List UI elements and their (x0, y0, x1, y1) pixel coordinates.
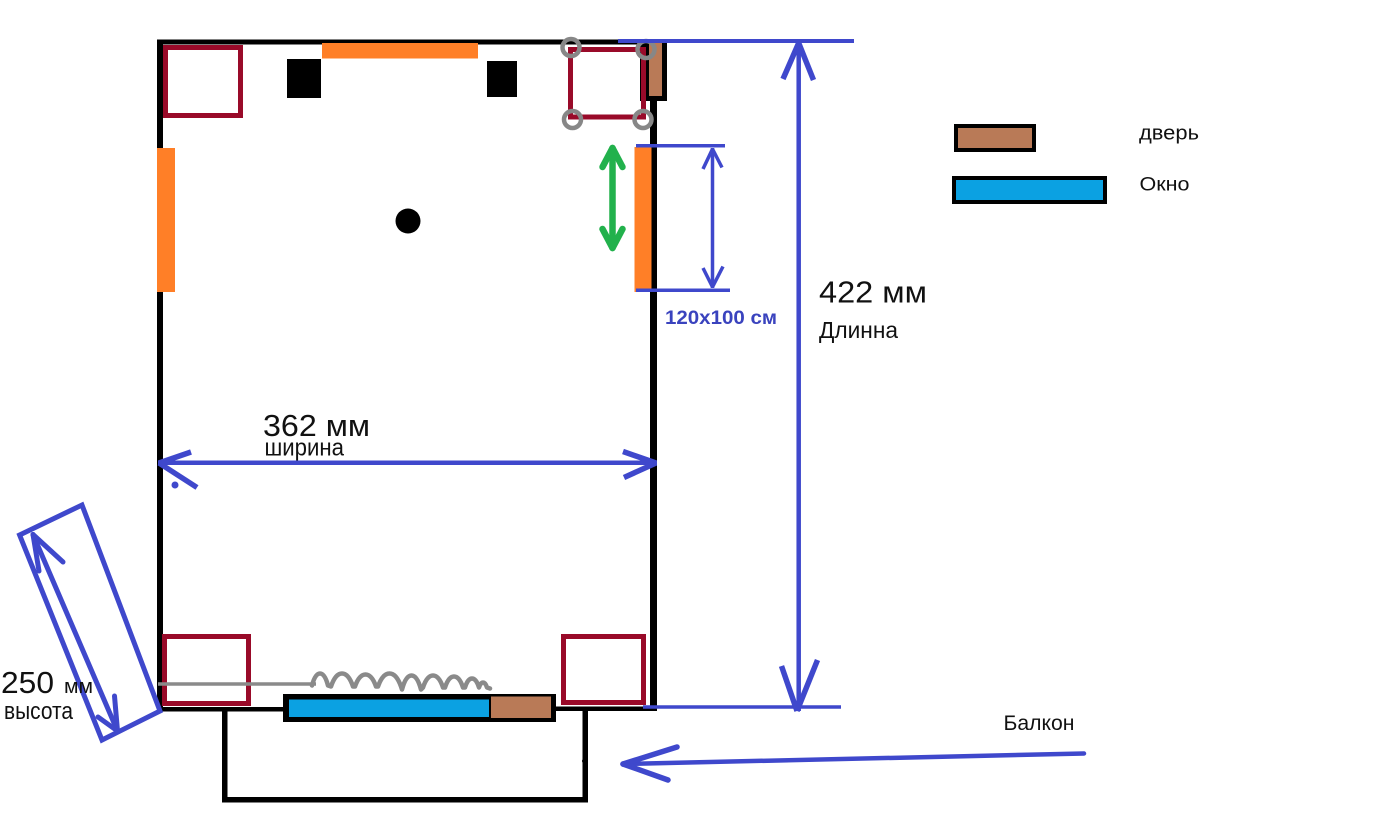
svg-text:ширина: ширина (265, 435, 345, 462)
svg-text:Балкон: Балкон (1004, 711, 1075, 735)
svg-text:мм: мм (64, 676, 93, 698)
svg-text:250: 250 (1, 666, 54, 700)
svg-text:высота: высота (4, 698, 74, 725)
svg-text:Окно: Окно (1140, 175, 1190, 196)
svg-text:Длинна: Длинна (819, 317, 899, 343)
svg-text:120x100 см: 120x100 см (665, 307, 777, 329)
svg-text:дверь: дверь (1139, 123, 1199, 145)
svg-text:422 мм: 422 мм (819, 275, 927, 310)
